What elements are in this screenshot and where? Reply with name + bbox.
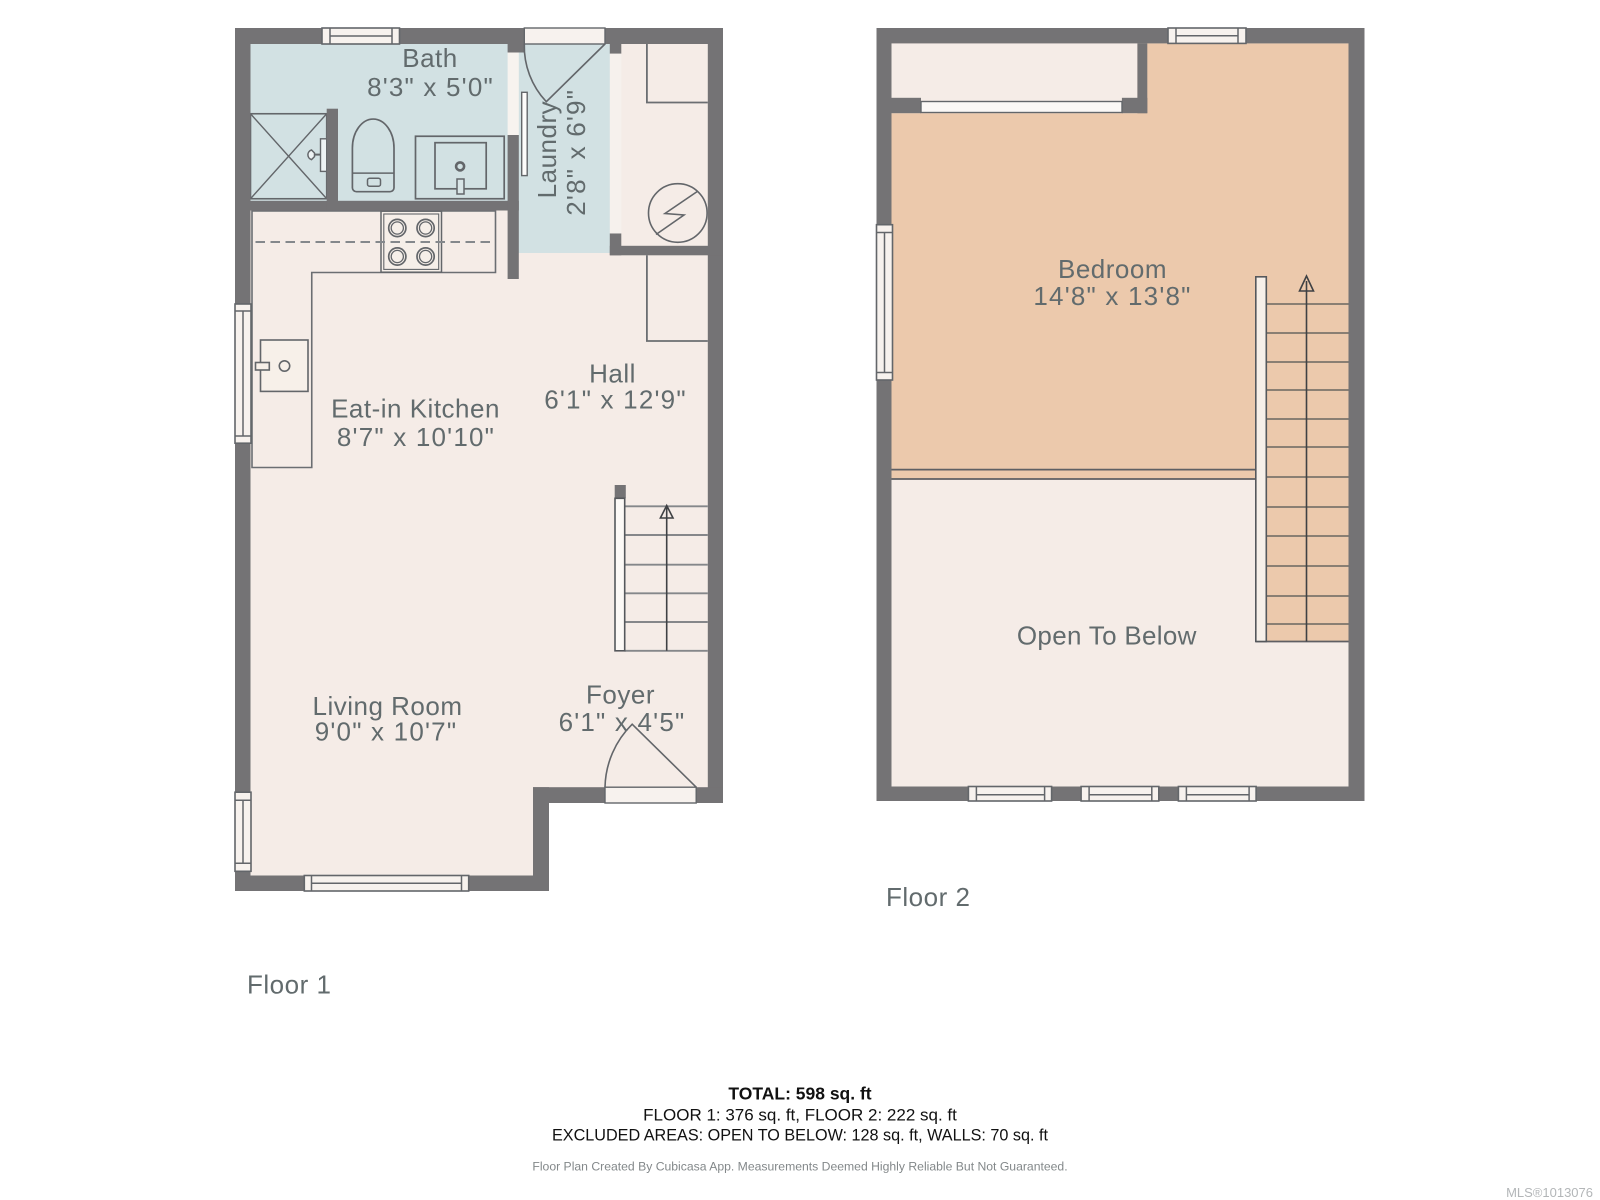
svg-text:9'0" x 10'7": 9'0" x 10'7": [315, 717, 458, 747]
svg-text:Bath: Bath: [402, 43, 458, 73]
svg-text:TOTAL: 598 sq. ft: TOTAL: 598 sq. ft: [728, 1084, 871, 1104]
svg-text:MLS®1013076: MLS®1013076: [1506, 1185, 1593, 1200]
svg-text:Bedroom: Bedroom: [1058, 254, 1167, 284]
svg-text:FLOOR 1: 376 sq. ft, FLOOR 2:: FLOOR 1: 376 sq. ft, FLOOR 2: 222 sq. ft: [643, 1106, 957, 1125]
svg-text:Foyer: Foyer: [586, 680, 655, 710]
svg-text:6'1" x 4'5": 6'1" x 4'5": [559, 707, 686, 737]
svg-text:Floor 1: Floor 1: [247, 970, 331, 1000]
svg-text:EXCLUDED AREAS: OPEN TO BELOW:: EXCLUDED AREAS: OPEN TO BELOW: 128 sq. f…: [552, 1127, 1049, 1145]
svg-text:2'8" x 6'9": 2'8" x 6'9": [561, 89, 591, 216]
svg-text:Laundry: Laundry: [532, 101, 562, 198]
svg-text:6'1" x 12'9": 6'1" x 12'9": [544, 385, 687, 415]
svg-text:Floor 2: Floor 2: [886, 882, 970, 912]
svg-text:8'3" x 5'0": 8'3" x 5'0": [367, 72, 494, 102]
svg-text:14'8" x 13'8": 14'8" x 13'8": [1033, 281, 1191, 311]
svg-text:8'7" x 10'10": 8'7" x 10'10": [337, 422, 495, 452]
svg-text:Floor Plan Created By Cubicasa: Floor Plan Created By Cubicasa App. Meas…: [532, 1160, 1067, 1174]
svg-text:Eat-in Kitchen: Eat-in Kitchen: [331, 394, 500, 424]
svg-text:Open To Below: Open To Below: [1017, 621, 1197, 651]
